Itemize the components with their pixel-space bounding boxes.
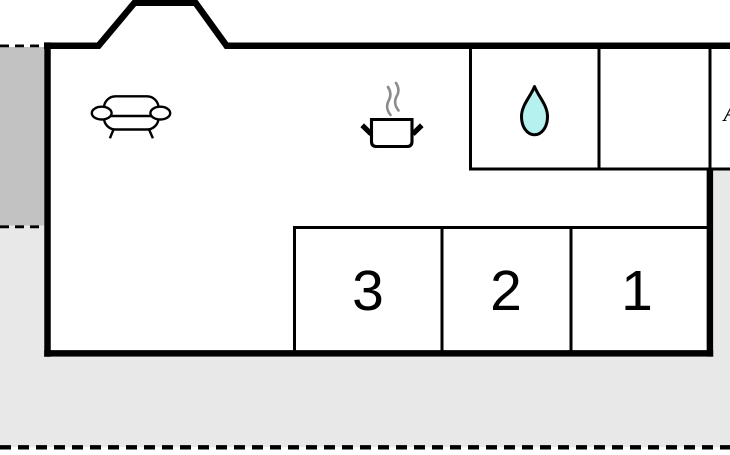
svg-text:2: 2 bbox=[490, 259, 522, 323]
svg-text:A: A bbox=[722, 101, 730, 127]
svg-text:1: 1 bbox=[621, 259, 653, 323]
svg-text:3: 3 bbox=[352, 259, 384, 323]
